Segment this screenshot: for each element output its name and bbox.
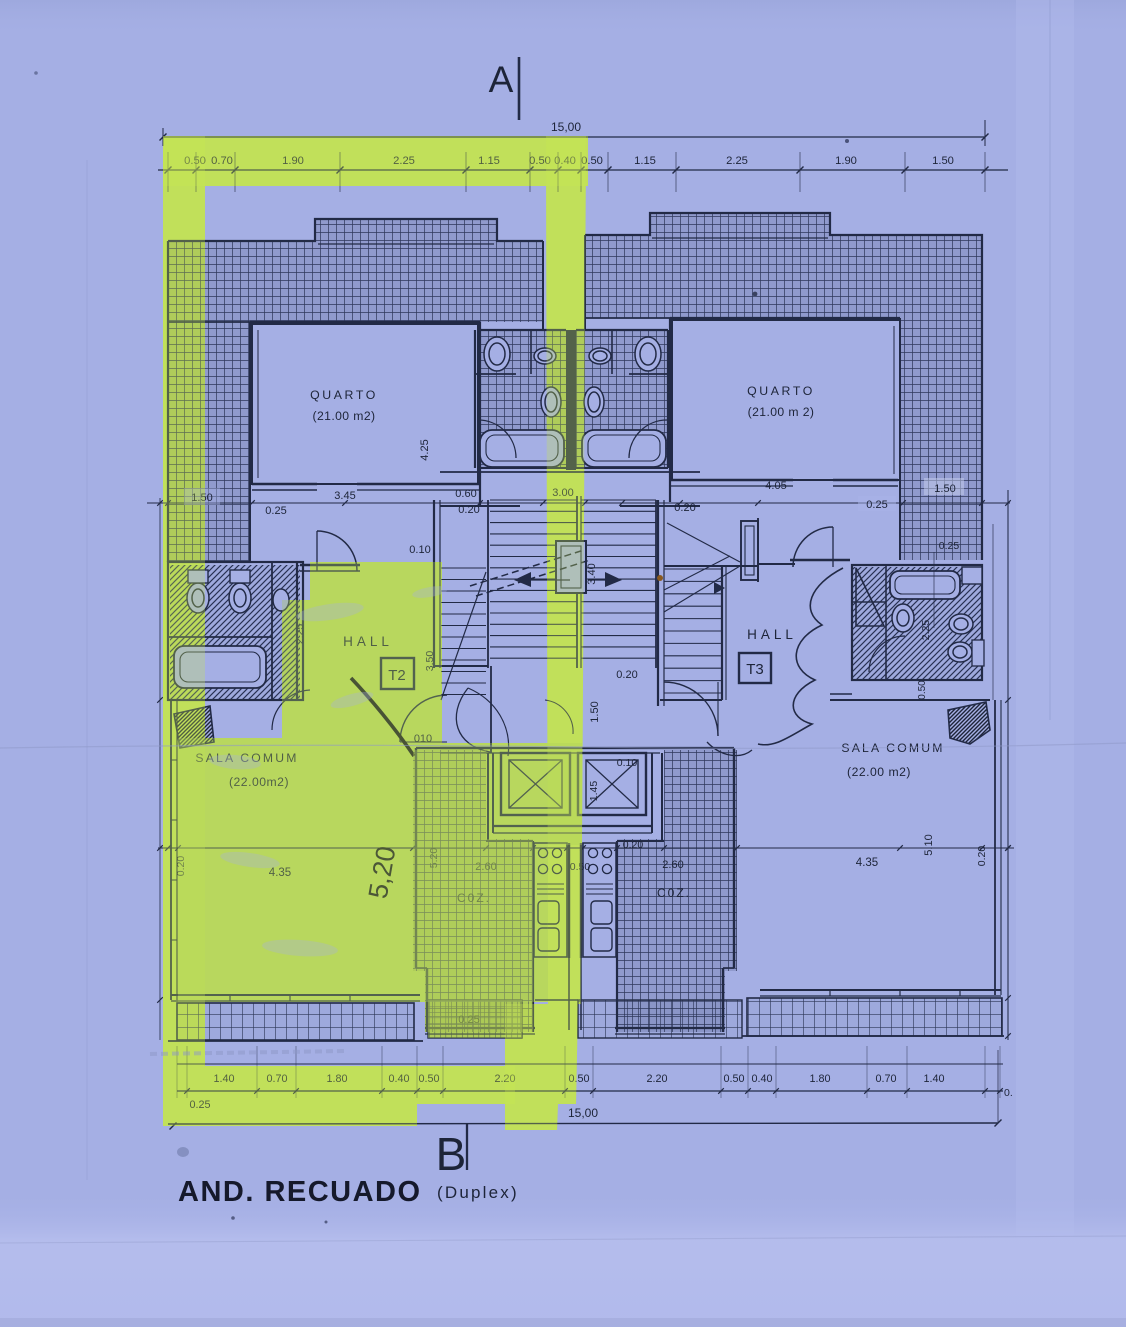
svg-text:0.25: 0.25	[866, 499, 887, 511]
svg-text:A: A	[489, 59, 514, 100]
svg-text:3.40: 3.40	[586, 563, 598, 584]
svg-text:0.20: 0.20	[623, 839, 644, 851]
svg-text:4.25: 4.25	[419, 439, 431, 460]
svg-text:0.10: 0.10	[409, 544, 430, 556]
svg-text:2.25: 2.25	[920, 620, 932, 641]
svg-text:1.90: 1.90	[835, 155, 857, 167]
svg-text:0.10: 0.10	[617, 757, 638, 769]
svg-text:2.25: 2.25	[726, 155, 748, 167]
svg-text:0.60: 0.60	[455, 488, 476, 500]
svg-text:1.50: 1.50	[932, 155, 954, 167]
svg-text:(21.00 m2): (21.00 m2)	[313, 409, 376, 423]
svg-text:4.05: 4.05	[765, 480, 786, 492]
svg-text:0.25: 0.25	[265, 505, 286, 517]
svg-text:1.50: 1.50	[589, 701, 601, 722]
svg-text:4.35: 4.35	[856, 857, 878, 869]
svg-text:1.40: 1.40	[923, 1073, 944, 1085]
svg-text:0.20: 0.20	[616, 669, 637, 681]
svg-text:C0Z.: C0Z.	[657, 886, 691, 900]
svg-text:2.60: 2.60	[662, 859, 683, 871]
svg-text:0.20: 0.20	[976, 846, 988, 867]
svg-text:AND. RECUADO: AND. RECUADO	[178, 1176, 422, 1208]
svg-text:(Duplex): (Duplex)	[437, 1183, 519, 1202]
svg-text:0.25: 0.25	[939, 540, 960, 552]
svg-text:0.20: 0.20	[458, 504, 479, 516]
svg-text:T3: T3	[746, 661, 764, 678]
svg-text:HALL: HALL	[747, 627, 797, 642]
svg-text:0.50: 0.50	[917, 680, 928, 700]
svg-text:2.20: 2.20	[646, 1073, 667, 1085]
svg-text:1.45: 1.45	[588, 781, 600, 802]
svg-text:0.50: 0.50	[723, 1073, 744, 1085]
svg-text:0.: 0.	[1004, 1087, 1013, 1099]
svg-text:15,00: 15,00	[551, 120, 581, 134]
svg-text:1.50: 1.50	[934, 483, 955, 495]
svg-text:15,00: 15,00	[568, 1106, 598, 1120]
svg-text:(22.00 m2): (22.00 m2)	[847, 765, 911, 779]
svg-text:3.45: 3.45	[334, 490, 355, 502]
svg-text:B: B	[436, 1128, 467, 1180]
svg-text:QUARTO: QUARTO	[747, 384, 815, 398]
svg-text:1.15: 1.15	[634, 155, 656, 167]
svg-text:5.10: 5.10	[923, 834, 935, 855]
svg-text:QUARTO: QUARTO	[310, 388, 378, 402]
svg-text:0.40: 0.40	[751, 1073, 772, 1085]
svg-text:(21.00 m 2): (21.00 m 2)	[748, 405, 815, 419]
svg-text:0.70: 0.70	[875, 1073, 896, 1085]
svg-text:0.20: 0.20	[674, 502, 695, 514]
svg-text:1.80: 1.80	[809, 1073, 830, 1085]
